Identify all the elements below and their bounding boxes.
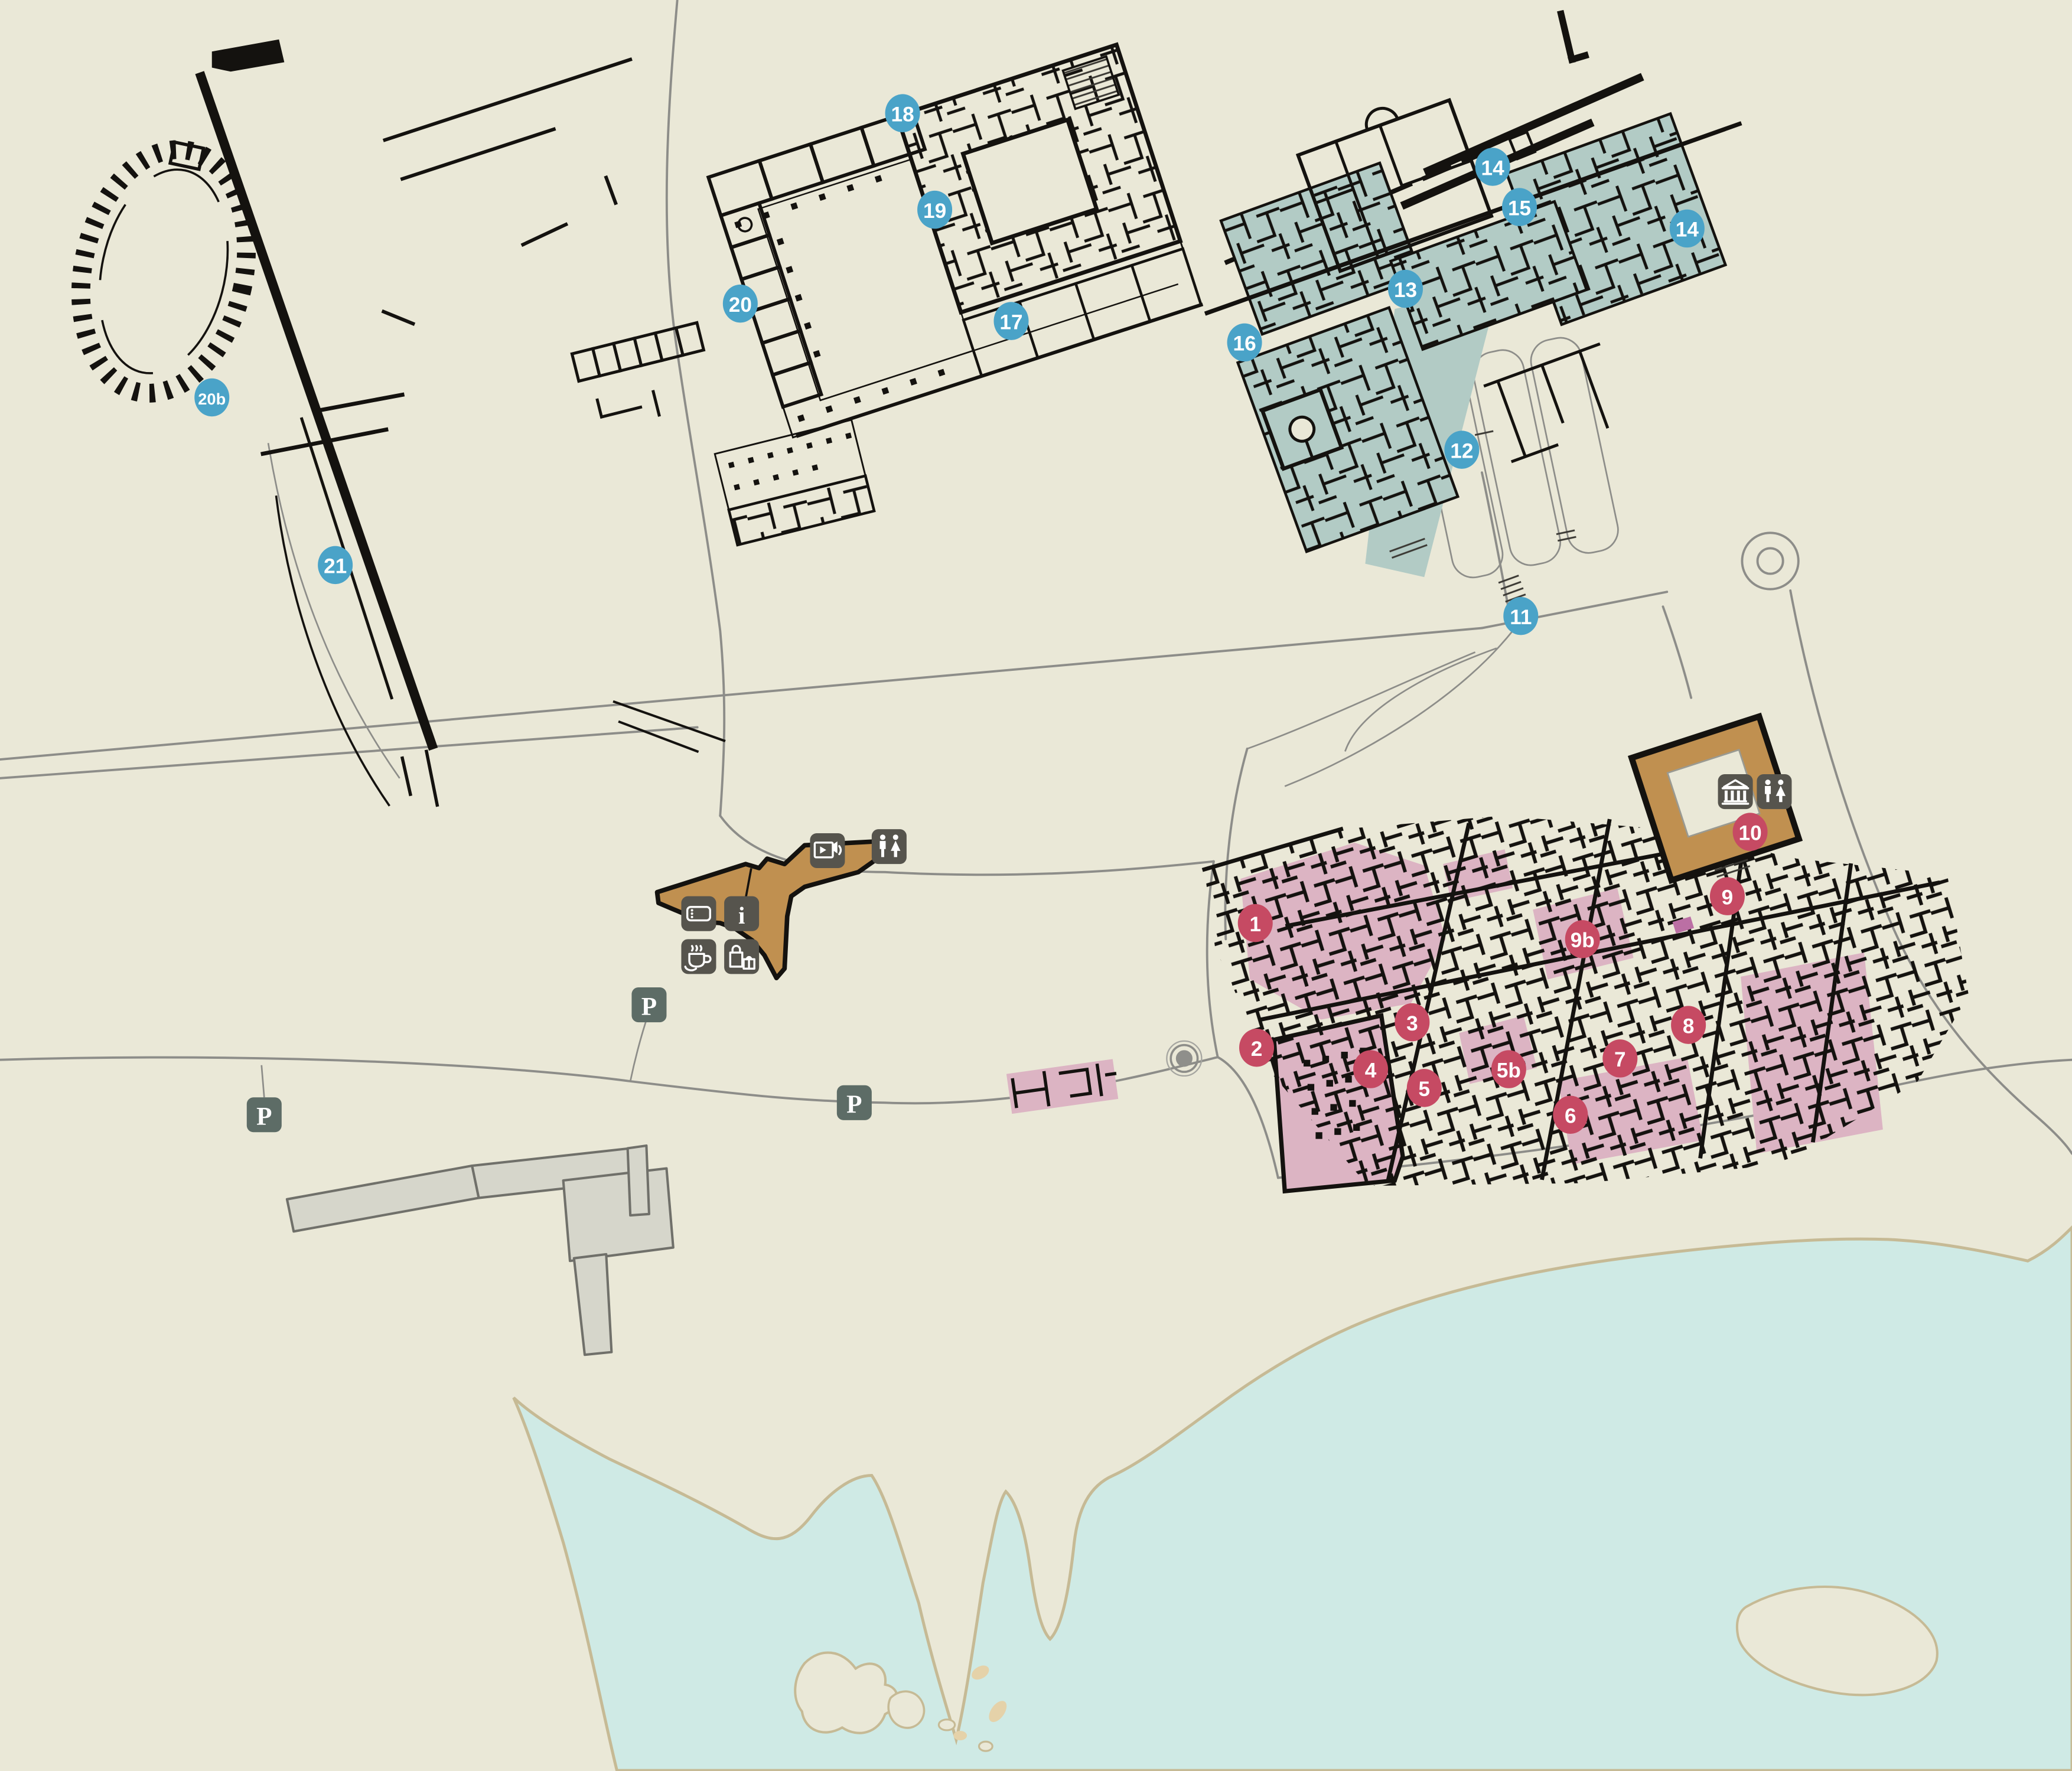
parking-letter: P	[256, 1103, 272, 1131]
map-marker-blue-20[interactable]: 20	[723, 285, 758, 322]
marker-number: 11	[1510, 606, 1532, 629]
marker-number: 8	[1683, 1015, 1695, 1038]
map-marker-blue-20b[interactable]: 20b	[194, 379, 229, 416]
site-map: PPPi 123455b67899b1011121314151416171819…	[0, 0, 2072, 1771]
map-marker-blue-14[interactable]: 14	[1475, 148, 1510, 185]
av-room-icon[interactable]	[810, 833, 845, 868]
marker-number: 5b	[1497, 1059, 1521, 1082]
map-marker-red-4[interactable]: 4	[1353, 1050, 1388, 1088]
map-marker-blue-12[interactable]: 12	[1444, 430, 1479, 468]
shop-icon[interactable]	[724, 939, 759, 974]
parking-icon[interactable]: P	[837, 1085, 872, 1120]
map-marker-blue-11[interactable]: 11	[1503, 597, 1538, 635]
parking-icon[interactable]: P	[247, 1097, 282, 1132]
marker-number: 19	[923, 200, 946, 223]
marker-number: 2	[1251, 1038, 1263, 1061]
marker-number: 3	[1406, 1012, 1418, 1035]
island	[888, 1691, 924, 1728]
cafe-icon[interactable]	[681, 939, 716, 974]
map-marker-blue-13[interactable]: 13	[1388, 270, 1423, 308]
icon-tile	[1757, 774, 1791, 809]
pink-zone-city	[1204, 816, 1969, 1191]
map-marker-blue-15[interactable]: 15	[1502, 188, 1537, 226]
parking-letter: P	[641, 993, 657, 1020]
marker-number: 4	[1365, 1059, 1377, 1082]
marker-number: 20b	[198, 390, 226, 408]
museum-icon[interactable]	[1718, 774, 1753, 809]
map-marker-red-8[interactable]: 8	[1671, 1006, 1706, 1043]
marker-number: 10	[1738, 821, 1761, 844]
sand-patch	[953, 1731, 967, 1740]
marker-number: 12	[1450, 439, 1473, 462]
info-letter: i	[738, 902, 745, 929]
map-marker-blue-14[interactable]: 14	[1670, 210, 1705, 247]
icon-tile	[872, 829, 907, 864]
marker-number: 14	[1676, 218, 1699, 242]
parking-letter: P	[846, 1091, 862, 1118]
map-canvas: PPPi 123455b67899b1011121314151416171819…	[0, 0, 2072, 1771]
marker-number: 1	[1249, 913, 1261, 936]
info-icon[interactable]: i	[724, 896, 759, 931]
map-marker-blue-17[interactable]: 17	[993, 302, 1028, 340]
islet	[939, 1720, 954, 1730]
map-marker-red-5[interactable]: 5	[1407, 1069, 1442, 1107]
marker-number: 17	[999, 311, 1022, 334]
marker-number: 15	[1508, 197, 1531, 220]
map-marker-red-9b[interactable]: 9b	[1565, 920, 1600, 958]
marker-number: 14	[1481, 156, 1505, 180]
map-marker-blue-16[interactable]: 16	[1227, 324, 1262, 361]
marker-number: 7	[1614, 1048, 1626, 1071]
marker-number: 6	[1565, 1105, 1576, 1128]
map-marker-blue-21[interactable]: 21	[318, 546, 353, 584]
marker-number: 18	[891, 103, 914, 126]
map-marker-red-10[interactable]: 10	[1733, 813, 1768, 850]
map-marker-red-3[interactable]: 3	[1395, 1003, 1429, 1041]
marker-number: 21	[324, 555, 347, 578]
marker-number: 13	[1394, 279, 1417, 302]
toilets-icon[interactable]	[1757, 774, 1791, 809]
map-marker-blue-18[interactable]: 18	[885, 94, 920, 132]
islet	[979, 1741, 993, 1751]
map-marker-red-6[interactable]: 6	[1553, 1096, 1588, 1134]
parking-icon[interactable]: P	[631, 987, 666, 1022]
marker-number: 9b	[1571, 929, 1595, 952]
tickets-icon[interactable]	[681, 896, 716, 931]
map-marker-red-5b[interactable]: 5b	[1491, 1050, 1526, 1088]
map-marker-red-1[interactable]: 1	[1238, 904, 1273, 942]
map-marker-red-9[interactable]: 9	[1710, 877, 1745, 915]
map-marker-red-7[interactable]: 7	[1602, 1039, 1637, 1077]
toilets-icon[interactable]	[872, 829, 907, 864]
marker-number: 9	[1722, 886, 1734, 909]
marker-number: 16	[1233, 332, 1256, 355]
map-marker-blue-19[interactable]: 19	[917, 191, 952, 229]
marker-number: 20	[729, 293, 752, 317]
marker-number: 5	[1419, 1078, 1431, 1101]
map-marker-red-2[interactable]: 2	[1239, 1029, 1274, 1066]
